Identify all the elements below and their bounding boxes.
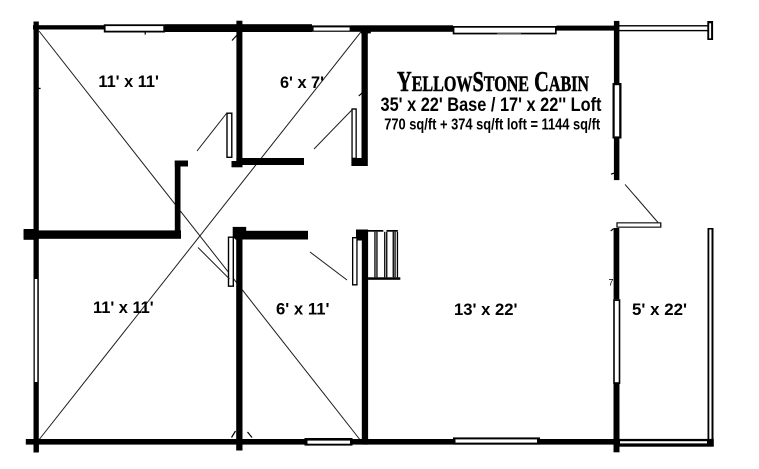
svg-text:13' x 22': 13' x 22' bbox=[454, 300, 518, 319]
svg-text:6' x 7': 6' x 7' bbox=[280, 73, 324, 92]
svg-text:5' x 22': 5' x 22' bbox=[632, 300, 687, 319]
svg-text:35' x 22' Base / 17' x 22'' Lo: 35' x 22' Base / 17' x 22'' Loft bbox=[381, 95, 603, 116]
svg-text:770 sq/ft + 374 sq/ft loft = 1: 770 sq/ft + 374 sq/ft loft = 1144 sq/ft bbox=[384, 117, 601, 134]
svg-text:7: 7 bbox=[609, 278, 614, 288]
svg-text:11' x 11': 11' x 11' bbox=[98, 72, 158, 91]
svg-text:6' x 11': 6' x 11' bbox=[276, 300, 330, 319]
svg-text:11' x 11': 11' x 11' bbox=[93, 298, 154, 317]
